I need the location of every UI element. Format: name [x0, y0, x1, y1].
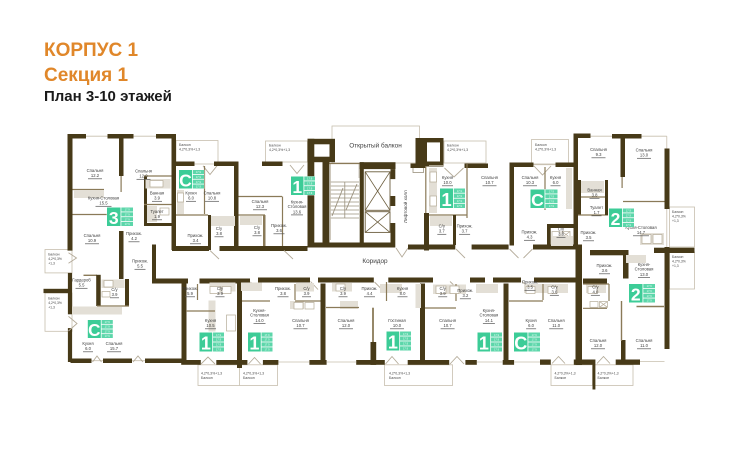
svg-text:17.9: 17.9 [125, 208, 131, 212]
svg-text:3.8: 3.8 [280, 291, 286, 296]
svg-text:17.9: 17.9 [626, 213, 632, 217]
svg-text:17.9: 17.9 [216, 338, 222, 342]
svg-text:17.9: 17.9 [105, 334, 111, 338]
svg-text:1: 1 [201, 333, 211, 353]
svg-text:Балкон: Балкон [447, 144, 459, 148]
svg-text:+1,3: +1,3 [48, 261, 55, 265]
svg-text:4,2*0,3%+1,3: 4,2*0,3%+1,3 [555, 372, 576, 376]
svg-text:17.9: 17.9 [494, 333, 500, 337]
svg-text:КОРПУС 1: КОРПУС 1 [44, 40, 139, 61]
svg-text:4.4: 4.4 [367, 291, 373, 296]
svg-text:4.2: 4.2 [131, 236, 137, 241]
svg-text:1: 1 [249, 333, 259, 353]
svg-text:Балкон: Балкон [201, 376, 213, 380]
svg-text:17.9: 17.9 [494, 343, 500, 347]
svg-text:17.9: 17.9 [307, 186, 313, 190]
svg-text:17.9: 17.9 [457, 194, 463, 198]
svg-text:2: 2 [631, 284, 641, 304]
svg-text:6.0: 6.0 [188, 196, 194, 201]
svg-text:17.9: 17.9 [457, 189, 463, 193]
svg-text:17.9: 17.9 [626, 218, 632, 222]
svg-text:17.9: 17.9 [532, 343, 538, 347]
svg-text:17.9: 17.9 [532, 348, 538, 352]
svg-text:Коридор: Коридор [362, 258, 388, 265]
svg-text:Открытый балкон: Открытый балкон [349, 142, 402, 150]
svg-text:8.0: 8.0 [400, 291, 406, 296]
svg-text:3.9: 3.9 [217, 291, 223, 296]
svg-text:Балкон: Балкон [672, 255, 683, 259]
svg-text:С: С [531, 190, 544, 210]
svg-text:Балкон: Балкон [179, 143, 191, 147]
svg-text:4,2*0,3%+1,3: 4,2*0,3%+1,3 [535, 147, 556, 151]
svg-text:6.0: 6.0 [553, 180, 559, 185]
svg-text:13.0: 13.0 [640, 153, 649, 158]
svg-text:3.7: 3.7 [462, 229, 468, 234]
svg-text:10.7: 10.7 [296, 323, 305, 328]
svg-text:17.9: 17.9 [216, 333, 222, 337]
svg-text:17.9: 17.9 [125, 222, 131, 226]
svg-text:12.0: 12.0 [342, 323, 351, 328]
svg-text:4,2*0,3%: 4,2*0,3% [48, 257, 62, 261]
svg-text:17.9: 17.9 [549, 204, 555, 208]
svg-text:17.9: 17.9 [549, 190, 555, 194]
svg-text:12.3: 12.3 [256, 204, 265, 209]
svg-text:С: С [179, 170, 192, 190]
svg-text:3.5: 3.5 [586, 235, 592, 240]
svg-text:17.9: 17.9 [216, 343, 222, 347]
svg-text:3.8: 3.8 [558, 232, 564, 237]
svg-text:10.7: 10.7 [485, 180, 494, 185]
svg-text:14.0: 14.0 [255, 318, 264, 323]
svg-text:15.7: 15.7 [110, 346, 119, 351]
svg-text:14.1: 14.1 [485, 318, 494, 323]
svg-text:17.9: 17.9 [626, 209, 632, 213]
svg-text:3.6: 3.6 [276, 228, 282, 233]
svg-text:6.0: 6.0 [85, 346, 91, 351]
svg-text:15.5: 15.5 [99, 201, 108, 206]
svg-text:10.3: 10.3 [526, 180, 535, 185]
svg-text:4,2*0,3%: 4,2*0,3% [672, 214, 686, 218]
svg-text:3.8: 3.8 [216, 231, 222, 236]
svg-text:1.7: 1.7 [594, 210, 600, 215]
svg-text:17.9: 17.9 [196, 170, 202, 174]
svg-text:Балкон: Балкон [672, 210, 683, 214]
svg-text:С: С [88, 321, 100, 340]
svg-text:4,2*0,3%+1,3: 4,2*0,3%+1,3 [179, 147, 200, 151]
svg-text:17.9: 17.9 [216, 348, 222, 352]
svg-text:1: 1 [292, 177, 302, 197]
svg-text:17.9: 17.9 [307, 181, 313, 185]
svg-text:17.9: 17.9 [125, 212, 131, 216]
svg-text:3.9: 3.9 [340, 291, 346, 296]
svg-text:3.6: 3.6 [602, 268, 608, 273]
svg-text:5.9: 5.9 [187, 291, 193, 296]
svg-text:С: С [514, 333, 527, 353]
svg-text:17.9: 17.9 [647, 299, 653, 303]
svg-text:17.9: 17.9 [264, 338, 270, 342]
svg-text:Балкон: Балкон [48, 297, 59, 301]
svg-text:12.0: 12.0 [139, 174, 148, 179]
svg-text:17.9: 17.9 [196, 180, 202, 184]
svg-text:3.9: 3.9 [440, 291, 446, 296]
svg-text:10.0: 10.0 [393, 323, 402, 328]
svg-text:17.9: 17.9 [264, 343, 270, 347]
svg-text:12.0: 12.0 [594, 343, 603, 348]
svg-text:17.9: 17.9 [549, 194, 555, 198]
svg-text:4,2*0,3%+1,3: 4,2*0,3%+1,3 [598, 372, 619, 376]
svg-text:3.9: 3.9 [154, 196, 160, 201]
svg-text:17.9: 17.9 [494, 338, 500, 342]
svg-text:17.9: 17.9 [307, 191, 313, 195]
svg-text:3.8: 3.8 [254, 230, 260, 235]
svg-text:10.0: 10.0 [443, 180, 452, 185]
svg-text:17.9: 17.9 [264, 333, 270, 337]
svg-text:17.9: 17.9 [105, 329, 111, 333]
svg-text:17.9: 17.9 [494, 348, 500, 352]
svg-text:3.9: 3.9 [304, 291, 310, 296]
svg-text:+1,3: +1,3 [672, 219, 679, 223]
svg-text:5.5: 5.5 [137, 264, 143, 269]
svg-text:+1,3: +1,3 [48, 305, 55, 309]
svg-text:4,2*0,3%+1,3: 4,2*0,3%+1,3 [201, 372, 222, 376]
svg-text:17.9: 17.9 [105, 325, 111, 329]
svg-text:17.9: 17.9 [457, 199, 463, 203]
svg-text:3.4: 3.4 [193, 238, 199, 243]
svg-text:17.9: 17.9 [457, 204, 463, 208]
svg-text:Лифтовой холл: Лифтовой холл [402, 190, 408, 223]
svg-text:17.9: 17.9 [647, 284, 653, 288]
svg-text:Балкон: Балкон [555, 376, 567, 380]
svg-text:13.6: 13.6 [293, 209, 302, 214]
svg-text:3.6: 3.6 [551, 290, 557, 295]
svg-text:Балкон: Балкон [269, 144, 281, 148]
svg-text:1: 1 [441, 189, 451, 210]
svg-text:4,2*0,3%+1,3: 4,2*0,3%+1,3 [269, 148, 290, 152]
svg-text:10.8: 10.8 [208, 196, 217, 201]
svg-text:Балкон: Балкон [389, 376, 401, 380]
svg-text:10.9: 10.9 [88, 238, 97, 243]
svg-text:17.9: 17.9 [403, 337, 409, 341]
svg-text:17.9: 17.9 [196, 175, 202, 179]
svg-text:4,2*0,3%+1,3: 4,2*0,3%+1,3 [243, 372, 264, 376]
svg-text:+1,3: +1,3 [672, 264, 679, 268]
svg-text:17.9: 17.9 [532, 338, 538, 342]
svg-text:Балкон: Балкон [243, 376, 255, 380]
svg-text:17.9: 17.9 [105, 320, 111, 324]
svg-text:4.0: 4.0 [592, 290, 598, 295]
svg-text:4,2*0,3%+1,3: 4,2*0,3%+1,3 [447, 148, 468, 152]
svg-text:1: 1 [479, 333, 489, 353]
svg-text:3.9: 3.9 [112, 292, 118, 297]
svg-text:4,2*0,3%: 4,2*0,3% [48, 301, 62, 305]
svg-text:3.8: 3.8 [592, 193, 598, 198]
svg-text:11.0: 11.0 [640, 343, 649, 348]
svg-text:17.9: 17.9 [403, 332, 409, 336]
svg-text:11.0: 11.0 [552, 323, 561, 328]
svg-text:10.5: 10.5 [206, 323, 215, 328]
svg-text:Балкон: Балкон [598, 376, 610, 380]
svg-text:17.9: 17.9 [403, 347, 409, 351]
svg-text:3.2: 3.2 [462, 293, 468, 298]
svg-text:17.9: 17.9 [647, 289, 653, 293]
svg-text:17.9: 17.9 [647, 294, 653, 298]
svg-text:13.0: 13.0 [640, 272, 649, 277]
svg-text:Балкон: Балкон [535, 143, 547, 147]
svg-text:4.3: 4.3 [527, 235, 533, 240]
svg-text:12.2: 12.2 [91, 173, 100, 178]
svg-text:1.9: 1.9 [154, 214, 160, 219]
svg-text:17.9: 17.9 [626, 223, 632, 227]
svg-text:17.9: 17.9 [196, 185, 202, 189]
svg-text:9.3: 9.3 [596, 152, 602, 157]
svg-text:3.7: 3.7 [439, 229, 445, 234]
svg-text:10.7: 10.7 [444, 323, 453, 328]
svg-text:План 3-10 этажей: План 3-10 этажей [44, 88, 172, 105]
svg-text:6.0: 6.0 [528, 323, 534, 328]
svg-text:4,2*0,3%: 4,2*0,3% [672, 259, 686, 263]
svg-text:2: 2 [611, 209, 621, 229]
svg-text:Балкон: Балкон [48, 253, 59, 257]
svg-text:17.9: 17.9 [549, 199, 555, 203]
svg-text:17.9: 17.9 [264, 348, 270, 352]
svg-text:3.5: 3.5 [527, 285, 533, 290]
svg-text:Секция 1: Секция 1 [44, 65, 129, 86]
svg-text:1: 1 [388, 332, 398, 352]
svg-text:17.9: 17.9 [307, 177, 313, 181]
svg-text:17.9: 17.9 [403, 342, 409, 346]
svg-text:17.9: 17.9 [532, 333, 538, 337]
svg-text:5.5: 5.5 [79, 283, 85, 288]
svg-text:17.9: 17.9 [125, 217, 131, 221]
svg-text:14.7: 14.7 [637, 230, 646, 235]
svg-text:4,2*0,3%+1,3: 4,2*0,3%+1,3 [389, 372, 410, 376]
svg-text:3: 3 [109, 208, 119, 228]
